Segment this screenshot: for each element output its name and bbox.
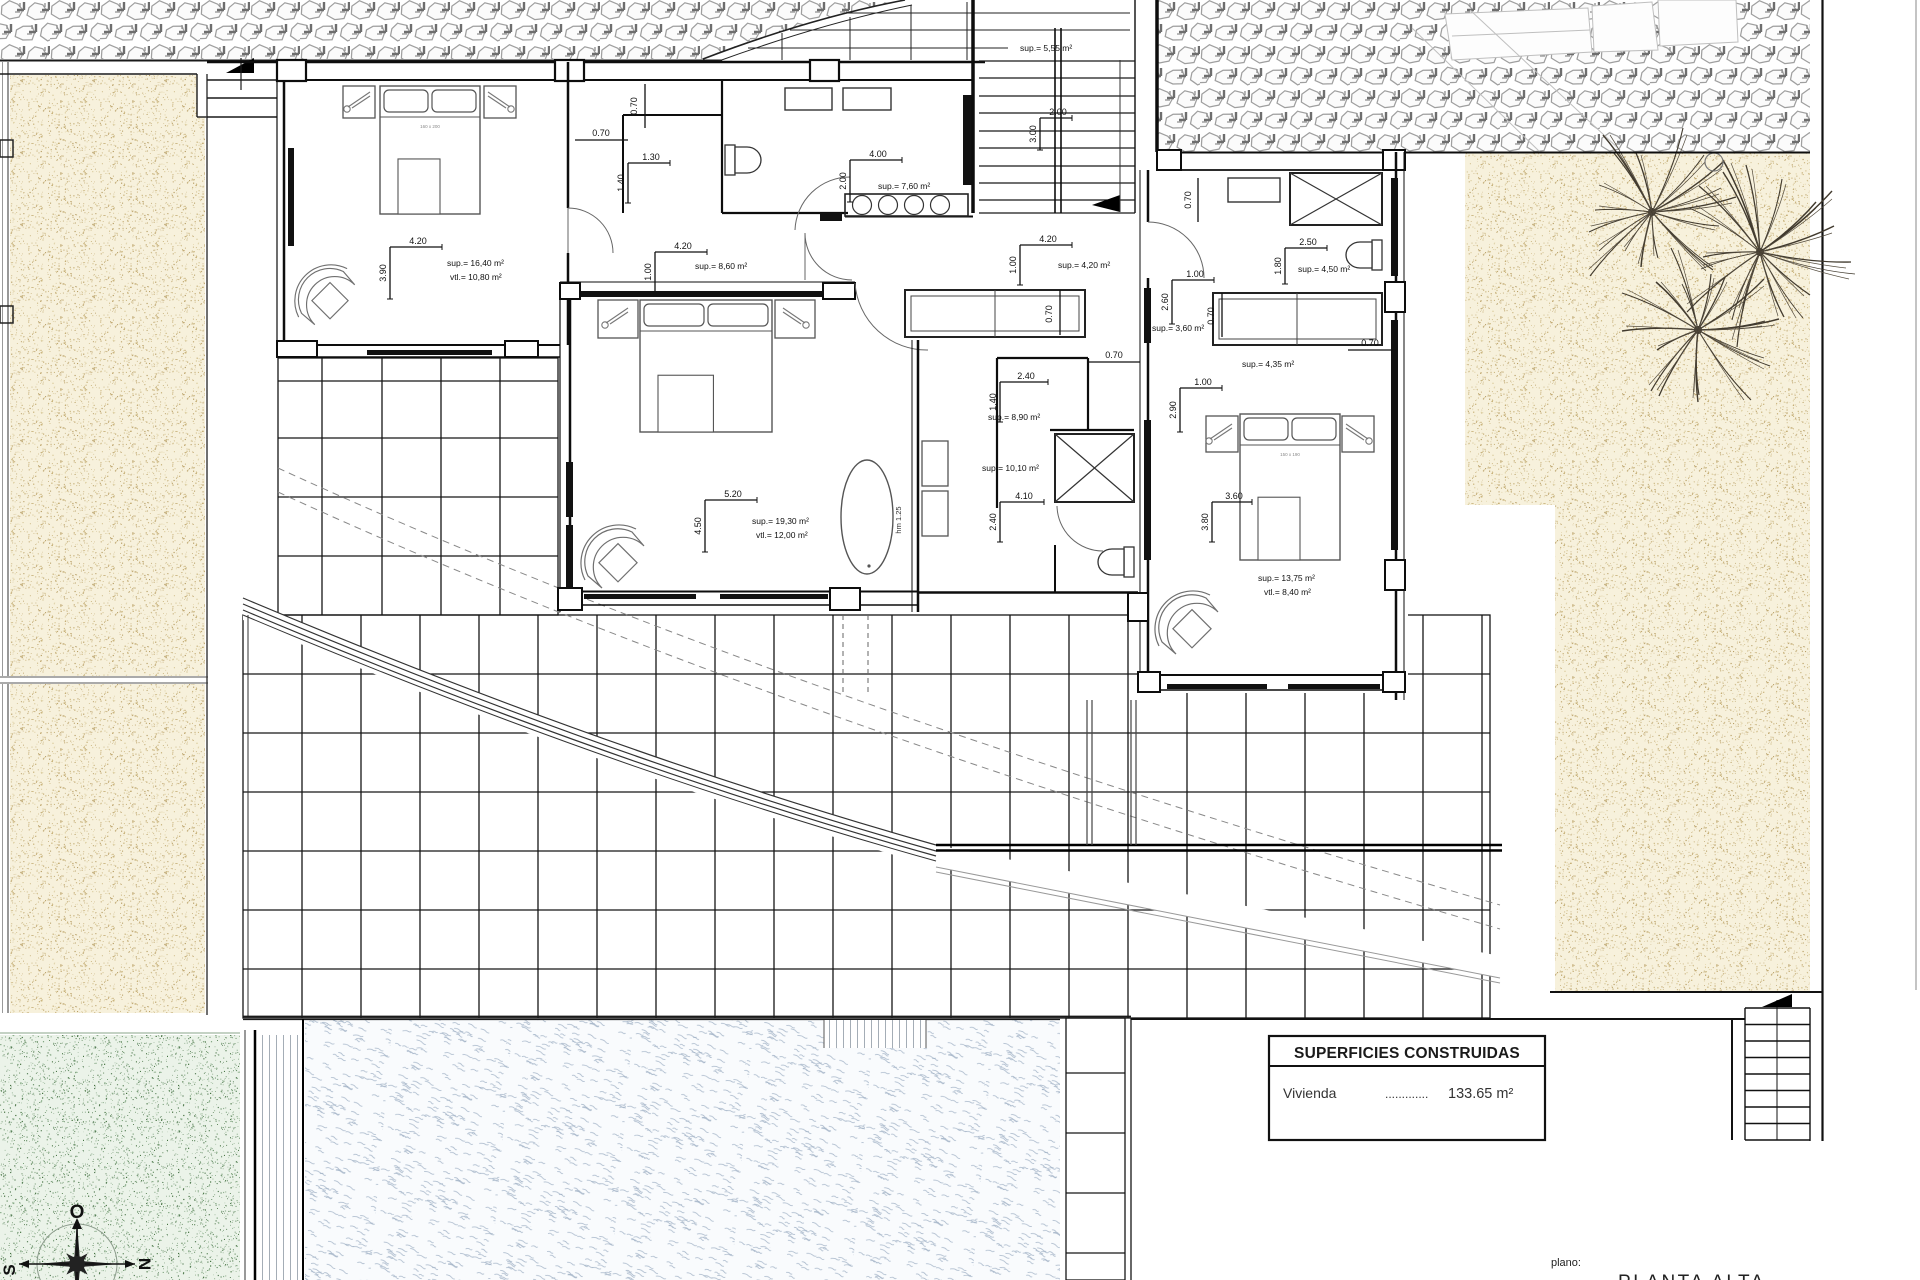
svg-text:1.40: 1.40 — [988, 393, 998, 411]
svg-text:sup.= 8,90 m²: sup.= 8,90 m² — [988, 412, 1040, 422]
svg-text:.............: ............. — [1385, 1087, 1428, 1101]
svg-text:0.70: 0.70 — [1183, 191, 1193, 209]
svg-text:1.40: 1.40 — [616, 174, 626, 192]
svg-text:2.90: 2.90 — [1168, 401, 1178, 419]
svg-text:S: S — [0, 1264, 19, 1275]
svg-text:160 x 200: 160 x 200 — [420, 124, 440, 129]
svg-text:2.60: 2.60 — [1160, 293, 1170, 311]
svg-text:N: N — [135, 1258, 154, 1270]
svg-text:2.40: 2.40 — [988, 513, 998, 531]
svg-text:133.65 m²: 133.65 m² — [1448, 1086, 1513, 1102]
svg-text:SUPERFICIES CONSTRUIDAS: SUPERFICIES CONSTRUIDAS — [1294, 1045, 1520, 1062]
svg-text:3.80: 3.80 — [1200, 513, 1210, 531]
svg-text:sup.= 19,30 m²: sup.= 19,30 m² — [752, 516, 809, 526]
svg-text:sup.= 10,10 m²: sup.= 10,10 m² — [982, 463, 1039, 473]
svg-text:0.70: 0.70 — [629, 97, 639, 115]
svg-text:4.00: 4.00 — [869, 149, 887, 159]
svg-text:sup.= 5,55 m²: sup.= 5,55 m² — [1020, 43, 1072, 53]
svg-text:1.80: 1.80 — [1273, 257, 1283, 275]
svg-text:0.70: 0.70 — [1105, 350, 1123, 360]
svg-text:2.40: 2.40 — [1017, 371, 1035, 381]
svg-text:hm 1.25: hm 1.25 — [894, 506, 903, 533]
svg-text:Vivienda: Vivienda — [1283, 1085, 1337, 1101]
svg-text:vtl.= 8,40 m²: vtl.= 8,40 m² — [1264, 587, 1311, 597]
svg-text:2.00: 2.00 — [838, 172, 848, 190]
svg-text:sup.= 8,60 m²: sup.= 8,60 m² — [695, 261, 747, 271]
svg-text:3.60: 3.60 — [1225, 491, 1243, 501]
svg-text:1.30: 1.30 — [642, 152, 660, 162]
svg-text:3.90: 3.90 — [378, 264, 388, 282]
svg-text:PLANTA ALTA: PLANTA ALTA — [1618, 1272, 1766, 1280]
svg-text:O: O — [70, 1202, 85, 1223]
svg-text:sup.= 4,50 m²: sup.= 4,50 m² — [1298, 264, 1350, 274]
svg-text:sup.= 13,75 m²: sup.= 13,75 m² — [1258, 573, 1315, 583]
svg-text:0.70: 0.70 — [1206, 307, 1216, 325]
svg-text:5.20: 5.20 — [724, 489, 742, 499]
svg-text:150 x 190: 150 x 190 — [1280, 452, 1300, 457]
svg-text:1.00: 1.00 — [643, 263, 653, 281]
svg-text:1.00: 1.00 — [1008, 256, 1018, 274]
svg-text:4.10: 4.10 — [1015, 491, 1033, 501]
svg-text:1.00: 1.00 — [1194, 377, 1212, 387]
svg-text:sup.= 3,60 m²: sup.= 3,60 m² — [1152, 323, 1204, 333]
svg-text:4.20: 4.20 — [1039, 234, 1057, 244]
svg-text:sup.= 16,40 m²: sup.= 16,40 m² — [447, 258, 504, 268]
svg-text:0.70: 0.70 — [592, 128, 610, 138]
svg-text:2.50: 2.50 — [1299, 237, 1317, 247]
svg-text:sup.= 7,60 m²: sup.= 7,60 m² — [878, 181, 930, 191]
svg-text:0.70: 0.70 — [1044, 305, 1054, 323]
svg-text:sup.= 4,20 m²: sup.= 4,20 m² — [1058, 260, 1110, 270]
svg-text:2.00: 2.00 — [1049, 107, 1067, 117]
svg-text:sup.= 4,35 m²: sup.= 4,35 m² — [1242, 359, 1294, 369]
svg-text:4.50: 4.50 — [693, 517, 703, 535]
svg-text:3.00: 3.00 — [1028, 125, 1038, 143]
svg-text:vtl.= 12,00 m²: vtl.= 12,00 m² — [756, 530, 808, 540]
svg-text:0.70: 0.70 — [1361, 338, 1379, 348]
svg-text:4.20: 4.20 — [409, 236, 427, 246]
svg-text:vtl.= 10,80 m²: vtl.= 10,80 m² — [450, 272, 502, 282]
svg-text:4.20: 4.20 — [674, 241, 692, 251]
svg-text:1.00: 1.00 — [1186, 269, 1204, 279]
svg-text:plano:: plano: — [1551, 1257, 1581, 1269]
